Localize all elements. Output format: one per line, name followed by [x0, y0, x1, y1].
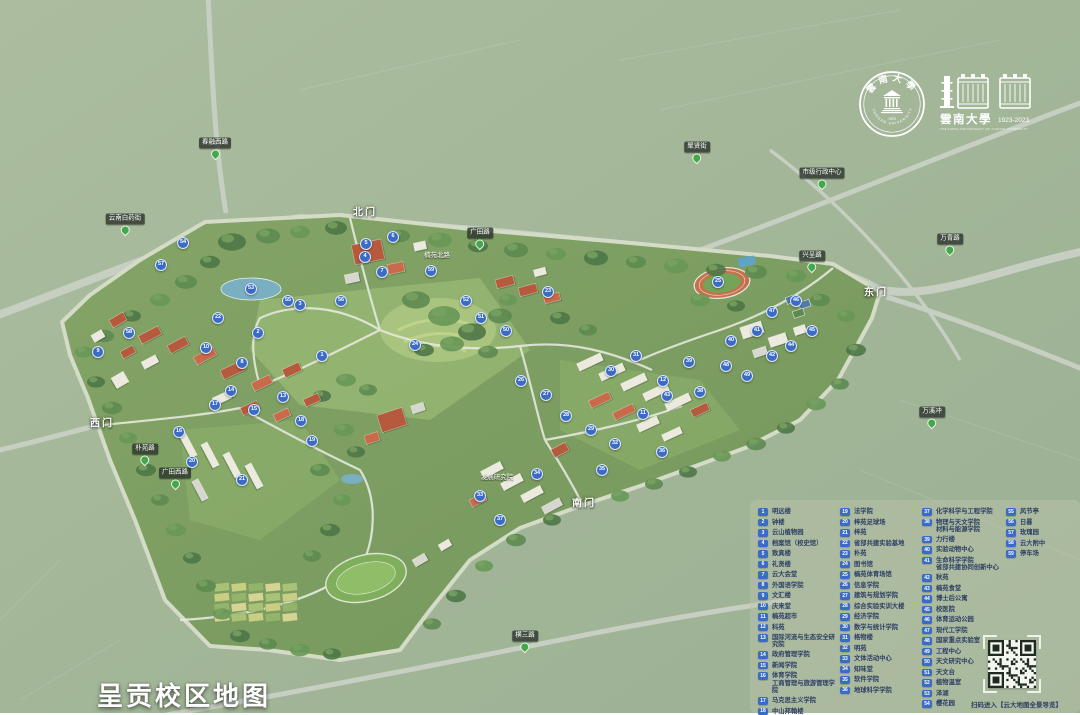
legend-item-label: 信息学院: [854, 582, 879, 589]
page-title: 呈贡校区地图: [97, 676, 271, 713]
legend-item: 47现代工学院: [922, 627, 1006, 635]
legend-item-number: 2: [758, 519, 768, 527]
legend-item-number: 58: [1006, 540, 1016, 548]
map-marker: 51: [475, 312, 487, 324]
legend-item-label: 博士后公寓: [936, 595, 967, 602]
legend-item-label: 物理与天文学院 材料与能源学院: [936, 519, 980, 533]
legend-item-label: 外国语学院: [772, 582, 803, 589]
legend-item-number: 10: [758, 603, 768, 611]
legend-item: 31格物楼: [840, 634, 922, 642]
legend-item-number: 14: [758, 651, 768, 659]
pin-icon: [926, 416, 939, 429]
legend-item: 29经济学院: [840, 613, 922, 621]
map-marker: 57: [155, 259, 167, 271]
map-marker: 8: [236, 357, 248, 369]
map-marker: 41: [751, 325, 763, 337]
legend-item: 26信息学院: [840, 582, 922, 590]
legend-item-label: 天文研究中心: [936, 658, 974, 665]
legend-item-label: 玫瑰园: [1020, 529, 1039, 536]
map-marker: 43: [661, 390, 673, 402]
gate-label: 南门: [572, 495, 596, 510]
legend-column-2: 19法学院20梓苑足球场21梓苑22省部共建实验基地23朴苑24图书馆25楠苑体…: [840, 508, 922, 710]
legend-item: 2钟楼: [758, 519, 840, 527]
legend-item-label: 格物楼: [854, 634, 873, 641]
map-marker: 5: [360, 238, 372, 250]
legend-item-label: 地球科学学院: [854, 687, 892, 694]
map-marker: 10: [200, 342, 212, 354]
map-marker: 19: [306, 435, 318, 447]
pin-label: 市级行政中心: [800, 168, 845, 179]
legend-item-number: 27: [840, 592, 850, 600]
legend-item-label: 云大会堂: [772, 571, 797, 578]
legend-item: 38物理与天文学院 材料与能源学院: [922, 519, 1006, 533]
map-marker: 12: [657, 375, 669, 387]
legend-item-number: 43: [922, 585, 932, 593]
legend-item-label: 政府管理学院: [772, 651, 810, 658]
map-marker: 48: [720, 360, 732, 372]
map-marker: 32: [609, 438, 621, 450]
map-pin: 万青路: [937, 234, 963, 255]
map-marker: 46: [790, 295, 802, 307]
map-marker: 4: [359, 251, 371, 263]
legend-item: 40实验动物中心: [922, 546, 1006, 554]
legend-item-label: 朴苑: [854, 550, 867, 557]
legend-item: 37化学科学与工程学院: [922, 508, 1006, 516]
legend-item: 24图书馆: [840, 561, 922, 569]
legend-item-label: 楠苑食堂: [936, 585, 961, 592]
legend-item-label: 风节亭: [1020, 508, 1039, 515]
map-marker: 9: [92, 346, 104, 358]
map-marker: 40: [725, 335, 737, 347]
legend-item-number: 34: [840, 666, 850, 674]
map-marker: 1: [316, 350, 328, 362]
map-marker: 54: [177, 237, 189, 249]
map-marker: 59: [425, 265, 437, 277]
university-seal: 雲南大學 YUNNAN UNIVERSITY 1923: [858, 70, 926, 138]
legend-item-label: 中山邦翰楼: [772, 708, 803, 715]
legend-item-label: 致真楼: [772, 550, 791, 557]
map-marker: 58: [123, 327, 135, 339]
legend-item: 7云大会堂: [758, 571, 840, 579]
map-pin: 兴呈路: [799, 251, 825, 272]
legend-item-number: 40: [922, 546, 932, 554]
legend-item-number: 47: [922, 627, 932, 635]
legend-item-label: 停车场: [1020, 550, 1039, 557]
legend-item-number: 23: [840, 550, 850, 558]
map-marker: 47: [766, 306, 778, 318]
legend-item-number: 59: [1006, 550, 1016, 558]
legend-item-number: 13: [758, 634, 768, 642]
map-marker: 33: [474, 490, 486, 502]
map-marker: 53: [245, 283, 257, 295]
legend-item-number: 38: [922, 519, 932, 527]
legend-item-number: 51: [922, 669, 932, 677]
legend-item-number: 44: [922, 595, 932, 603]
legend-item-number: 41: [922, 557, 932, 565]
legend-item-label: 生命科学学院 省部共建协同创新中心: [936, 557, 999, 571]
legend-item-label: 软件学院: [854, 676, 879, 683]
legend-item: 44博士后公寓: [922, 595, 1006, 603]
map-marker: 22: [212, 312, 224, 324]
campus-map: 雲南大學 YUNNAN UNIVERSITY 1923: [0, 0, 1080, 713]
pin-label: 兴呈路: [799, 251, 825, 262]
legend-item: 46体育运动公园: [922, 616, 1006, 624]
legend-item-label: 省部共建实验基地: [854, 540, 904, 547]
legend-item-number: 21: [840, 529, 850, 537]
legend-item-number: 30: [840, 624, 850, 632]
map-marker: 50: [500, 325, 512, 337]
legend-item-number: 4: [758, 540, 768, 548]
legend-item: 5致真楼: [758, 550, 840, 558]
map-marker: 35: [596, 464, 608, 476]
map-marker: 3: [294, 299, 306, 311]
legend-item-label: 化学科学与工程学院: [936, 508, 993, 515]
qr-code: [988, 640, 1036, 688]
map-pin: 广田路: [467, 228, 493, 249]
legend-item: 21梓苑: [840, 529, 922, 537]
map-marker: 42: [766, 350, 778, 362]
legend-item-label: 档案馆（校史馆）: [772, 540, 822, 547]
seal-year: 1923: [888, 117, 896, 121]
legend-item: 35软件学院: [840, 676, 922, 684]
legend-item: 17马克思主义学院: [758, 697, 840, 705]
legend-item-label: 工程中心: [936, 648, 961, 655]
legend-item-number: 6: [758, 561, 768, 569]
map-marker: 6: [387, 231, 399, 243]
legend-item: 41生命科学学院 省部共建协同创新中心: [922, 557, 1006, 571]
legend-item: 58云大附中: [1006, 540, 1076, 548]
map-marker: 7: [376, 266, 388, 278]
map-marker: 24: [409, 339, 421, 351]
legend-item: 10庆来堂: [758, 603, 840, 611]
anniv-en-text: THE 100TH ANNIVERSARY OF YUNNAN UNIVERSI…: [940, 127, 1028, 131]
map-marker: 39: [683, 356, 695, 368]
legend-item: 55风节亭: [1006, 508, 1076, 516]
legend-item: 42秋苑: [922, 574, 1006, 582]
legend-item: 15新闻学院: [758, 662, 840, 670]
map-pin: 朴苑路: [132, 444, 158, 465]
legend-item: 19法学院: [840, 508, 922, 516]
pin-icon: [119, 223, 132, 236]
map-pin: 云南白药街: [106, 214, 145, 235]
legend-item-label: 明远楼: [772, 508, 791, 515]
legend-item-number: 22: [840, 540, 850, 548]
legend-item-label: 楠苑体育场馆: [854, 571, 892, 578]
legend-item-number: 16: [758, 672, 768, 680]
legend-item-number: 49: [922, 648, 932, 656]
legend-item-label: 现代工学院: [936, 627, 967, 634]
legend-item-number: 37: [922, 508, 932, 516]
legend-item: 6礼贤楼: [758, 561, 840, 569]
qr-modules: [988, 640, 1036, 688]
legend-item-label: 数学与统计学院: [854, 624, 898, 631]
pin-label: 云南白药街: [106, 214, 145, 225]
legend-item: 33文体活动中心: [840, 655, 922, 663]
legend-item-number: 3: [758, 529, 768, 537]
legend-item-number: 55: [1006, 508, 1016, 516]
legend-item-label: 日晷: [1020, 519, 1033, 526]
legend-item-number: 46: [922, 616, 932, 624]
pin-label: 春融西路: [199, 138, 231, 149]
legend-item-number: 8: [758, 582, 768, 590]
map-marker: 15: [248, 404, 260, 416]
legend-item: 36地球科学学院: [840, 687, 922, 695]
map-marker: 17: [209, 399, 221, 411]
map-marker: 21: [236, 474, 248, 486]
legend-item-number: 19: [840, 508, 850, 516]
map-pin: 春融西路: [199, 138, 231, 159]
legend-item-label: 庆来堂: [772, 603, 791, 610]
pin-icon: [169, 477, 182, 490]
legend-item-label: 图书馆: [854, 561, 873, 568]
legend-item-number: 57: [1006, 529, 1016, 537]
legend-item: 45校医院: [922, 606, 1006, 614]
legend-item-number: 50: [922, 658, 932, 666]
legend-item-label: 校医院: [936, 606, 955, 613]
legend-item: 9文汇楼: [758, 592, 840, 600]
legend-item-label: 云山植物园: [772, 529, 803, 536]
pin-label: 万青路: [937, 234, 963, 245]
anniversary-logo: 雲南大學 1923-2023 THE 100TH ANNIVERSARY OF …: [936, 70, 1036, 136]
legend-item: 39力行楼: [922, 536, 1006, 544]
legend-item-number: 29: [840, 613, 850, 621]
legend-item-label: 文汇楼: [772, 592, 791, 599]
seal-building-icon: [881, 90, 903, 113]
anniv-years: 1923-2023: [998, 117, 1029, 124]
gate-label: 北门: [353, 204, 377, 219]
anniv-100-glyph: [940, 74, 1030, 108]
legend-item-label: 天文台: [936, 669, 955, 676]
legend-item-label: 植物温室: [936, 679, 961, 686]
pin-label: 朴苑路: [132, 444, 158, 455]
legend-item-number: 25: [840, 571, 850, 579]
legend-item-number: 5: [758, 550, 768, 558]
legend-item-label: 国际河流与生态安全研究院: [772, 634, 840, 648]
map-marker: 27: [540, 389, 552, 401]
legend-item-number: 24: [840, 561, 850, 569]
legend-item-label: 新闻学院: [772, 662, 797, 669]
poi-label: 发展研究院: [481, 471, 514, 481]
map-marker: 25: [712, 276, 724, 288]
map-marker: 18: [295, 415, 307, 427]
legend-item-number: 53: [922, 690, 932, 698]
legend-item: 20梓苑足球场: [840, 519, 922, 527]
legend-item: 16体育学院 工商管理与旅游管理学院: [758, 672, 840, 694]
map-marker: 55: [282, 295, 294, 307]
gate-label: 西门: [90, 415, 114, 430]
map-pin: 聚贤街: [684, 142, 710, 163]
legend-item-number: 39: [922, 536, 932, 544]
legend-item-label: 梓苑足球场: [854, 519, 885, 526]
map-marker: 29: [585, 424, 597, 436]
legend-item-number: 17: [758, 697, 768, 705]
legend-item-label: 国家重点实验室: [936, 637, 980, 644]
legend-item-label: 建筑与规划学院: [854, 592, 898, 599]
map-marker: 38: [694, 386, 706, 398]
university-logos: 雲南大學 YUNNAN UNIVERSITY 1923: [858, 70, 1038, 142]
legend-item: 43楠苑食堂: [922, 585, 1006, 593]
legend-item: 1明远楼: [758, 508, 840, 516]
map-pin: 广田西路: [159, 468, 191, 489]
legend-item: 59停车场: [1006, 550, 1076, 558]
legend-item: 18中山邦翰楼: [758, 708, 840, 715]
legend-item: 27建筑与规划学院: [840, 592, 922, 600]
pin-icon: [816, 177, 829, 190]
map-marker: 36: [656, 446, 668, 458]
legend-item: 56日晷: [1006, 519, 1076, 527]
legend-item: 12科苑: [758, 624, 840, 632]
legend-item-label: 泽湖: [936, 690, 949, 697]
legend-item-number: 28: [840, 603, 850, 611]
legend-item: 11楠苑超市: [758, 613, 840, 621]
legend-item-label: 文体活动中心: [854, 655, 892, 662]
legend-item-number: 36: [840, 687, 850, 695]
legend-item: 28综合实验实训大楼: [840, 603, 922, 611]
gate-label: 东门: [864, 284, 888, 299]
map-marker: 56: [335, 295, 347, 307]
legend-item-number: 20: [840, 519, 850, 527]
legend-item-label: 楠苑超市: [772, 613, 797, 620]
qr-note: 扫码进入【云大地图全景导览】: [912, 699, 1062, 709]
legend-item-number: 56: [1006, 519, 1016, 527]
pin-label: 广田路: [467, 228, 493, 239]
legend-item-number: 12: [758, 624, 768, 632]
map-pin: 横三路: [512, 631, 538, 652]
legend-item-label: 梓苑: [854, 529, 867, 536]
map-marker: 30: [605, 365, 617, 377]
legend-item-number: 48: [922, 637, 932, 645]
legend-item-label: 法学院: [854, 508, 873, 515]
pin-icon: [806, 260, 819, 273]
pin-label: 横三路: [512, 631, 538, 642]
legend-item-number: 52: [922, 679, 932, 687]
map-marker: 14: [225, 385, 237, 397]
legend-item: 23朴苑: [840, 550, 922, 558]
map-marker: 34: [531, 468, 543, 480]
legend-item-label: 体育运动公园: [936, 616, 974, 623]
pin-label: 广田西路: [159, 468, 191, 479]
pin-label: 万溪冲: [919, 407, 945, 418]
legend-item-number: 45: [922, 606, 932, 614]
legend-item-number: 26: [840, 582, 850, 590]
map-pin: 市级行政中心: [800, 168, 845, 189]
legend-item-label: 钟楼: [772, 519, 785, 526]
legend-item: 57玫瑰园: [1006, 529, 1076, 537]
pin-label: 聚贤街: [684, 142, 710, 153]
legend-item-number: 42: [922, 574, 932, 582]
anniv-cn-text: 雲南大學: [940, 112, 992, 126]
legend-item-label: 实验动物中心: [936, 546, 974, 553]
legend-item-number: 33: [840, 655, 850, 663]
pin-icon: [209, 147, 222, 160]
map-marker: 2: [252, 327, 264, 339]
legend-item-label: 明苑: [854, 645, 867, 652]
map-pin: 万溪冲: [919, 407, 945, 428]
map-marker: 37: [494, 514, 506, 526]
legend-item-label: 秋苑: [936, 574, 949, 581]
legend-item-label: 体育学院 工商管理与旅游管理学院: [772, 672, 840, 694]
legend-item-label: 科苑: [772, 624, 785, 631]
legend-item-label: 经济学院: [854, 613, 879, 620]
map-marker: 49: [741, 370, 753, 382]
map-marker: 13: [277, 391, 289, 403]
legend-item-number: 35: [840, 676, 850, 684]
map-marker: 28: [560, 410, 572, 422]
legend-item-label: 知味堂: [854, 666, 873, 673]
legend-item-number: 31: [840, 634, 850, 642]
legend-item-label: 云大附中: [1020, 540, 1045, 547]
poi-label: 楠苑北路: [424, 249, 450, 259]
legend-item-number: 9: [758, 592, 768, 600]
legend-item: 30数学与统计学院: [840, 624, 922, 632]
legend-item-label: 力行楼: [936, 536, 955, 543]
legend-item: 14政府管理学院: [758, 651, 840, 659]
map-marker: 31: [630, 350, 642, 362]
legend-item: 25楠苑体育场馆: [840, 571, 922, 579]
pin-icon: [519, 640, 532, 653]
legend-item: 3云山植物园: [758, 529, 840, 537]
legend-item-number: 18: [758, 708, 768, 715]
map-marker: 16: [173, 426, 185, 438]
pin-icon: [474, 237, 487, 250]
legend-item: 34知味堂: [840, 666, 922, 674]
map-marker: 23: [542, 286, 554, 298]
legend-item-number: 32: [840, 645, 850, 653]
pin-icon: [139, 453, 152, 466]
map-marker: 26: [515, 375, 527, 387]
legend-item-number: 11: [758, 613, 768, 621]
legend-item-label: 综合实验实训大楼: [854, 603, 904, 610]
legend-item-number: 15: [758, 662, 768, 670]
legend-item-label: 马克思主义学院: [772, 697, 816, 704]
legend-item-label: 礼贤楼: [772, 561, 791, 568]
pin-icon: [944, 243, 957, 256]
qr-code-frame: [984, 636, 1040, 692]
legend-item: 32明苑: [840, 645, 922, 653]
legend-item: 13国际河流与生态安全研究院: [758, 634, 840, 648]
map-marker: 44: [785, 340, 797, 352]
map-marker: 11: [637, 408, 649, 420]
legend-column-1: 1明远楼2钟楼3云山植物园4档案馆（校史馆）5致真楼6礼贤楼7云大会堂8外国语学…: [758, 508, 840, 710]
pin-icon: [691, 151, 704, 164]
map-marker: 52: [460, 295, 472, 307]
map-marker: 20: [186, 456, 198, 468]
legend-item: 22省部共建实验基地: [840, 540, 922, 548]
legend-item: 8外国语学院: [758, 582, 840, 590]
map-marker: 45: [806, 325, 818, 337]
legend-item-number: 1: [758, 508, 768, 516]
legend-item-number: 7: [758, 571, 768, 579]
legend-item: 4档案馆（校史馆）: [758, 540, 840, 548]
